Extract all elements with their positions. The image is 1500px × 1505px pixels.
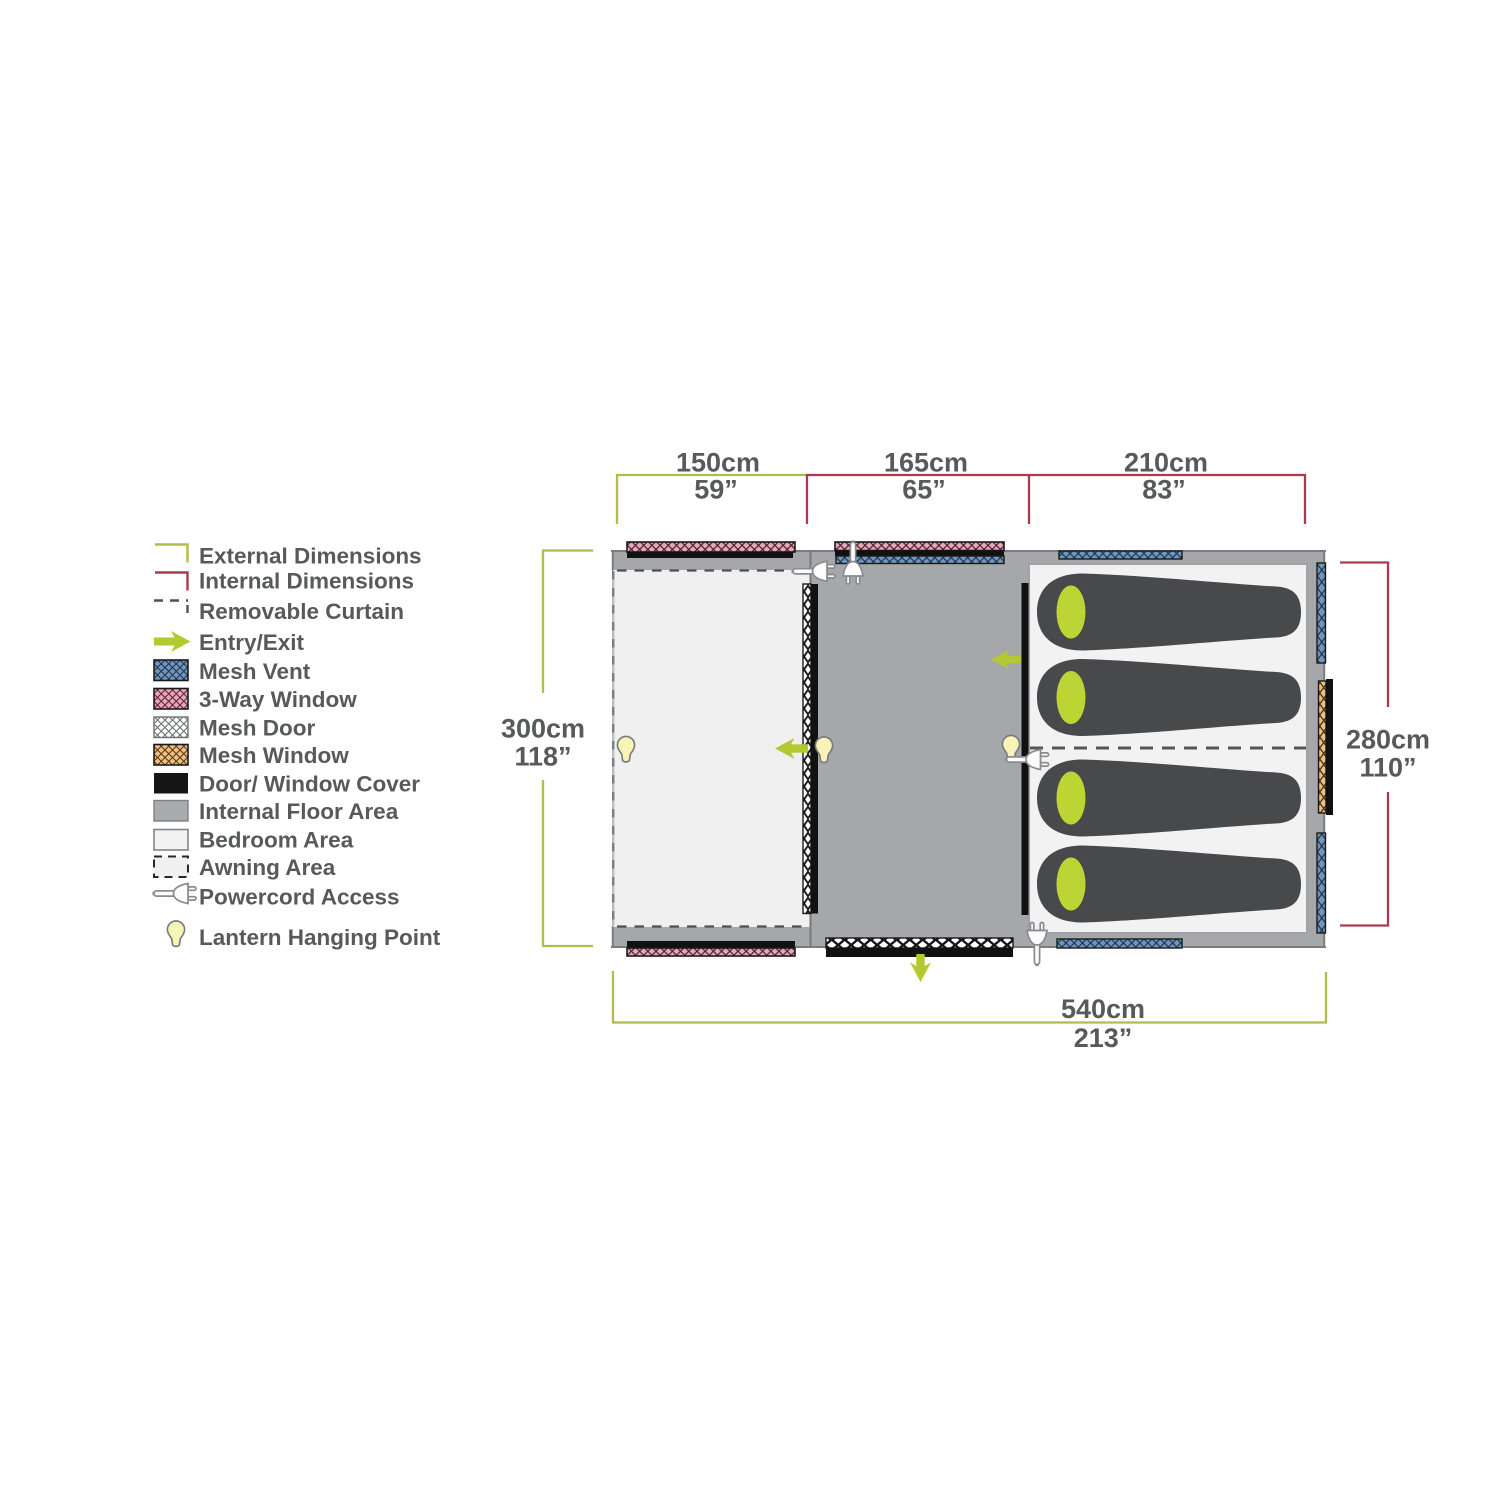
- svg-text:165cm: 165cm: [884, 448, 968, 478]
- svg-text:Powercord Access: Powercord Access: [199, 884, 400, 909]
- svg-text:Entry/Exit: Entry/Exit: [199, 630, 305, 655]
- svg-text:Mesh Vent: Mesh Vent: [199, 659, 311, 684]
- svg-text:Bedroom Area: Bedroom Area: [199, 828, 354, 853]
- svg-text:59”: 59”: [694, 475, 738, 505]
- svg-text:280cm: 280cm: [1346, 725, 1430, 755]
- svg-text:Door/ Window Cover: Door/ Window Cover: [199, 772, 420, 797]
- svg-text:83”: 83”: [1142, 475, 1186, 505]
- svg-text:150cm: 150cm: [676, 448, 760, 478]
- svg-text:213”: 213”: [1074, 1023, 1133, 1053]
- svg-text:3-Way Window: 3-Way Window: [199, 687, 357, 712]
- svg-text:110”: 110”: [1359, 753, 1416, 783]
- svg-text:Removable Curtain: Removable Curtain: [199, 599, 404, 624]
- svg-text:300cm: 300cm: [501, 714, 585, 744]
- svg-text:External Dimensions: External Dimensions: [199, 544, 422, 569]
- svg-text:Internal Floor Area: Internal Floor Area: [199, 799, 399, 824]
- svg-text:Awning Area: Awning Area: [199, 855, 336, 880]
- svg-text:65”: 65”: [902, 475, 946, 505]
- svg-text:540cm: 540cm: [1061, 994, 1145, 1024]
- svg-text:210cm: 210cm: [1124, 448, 1208, 478]
- svg-text:Mesh Window: Mesh Window: [199, 743, 349, 768]
- svg-text:Internal Dimensions: Internal Dimensions: [199, 569, 414, 594]
- svg-text:118”: 118”: [514, 742, 571, 772]
- svg-text:Mesh Door: Mesh Door: [199, 716, 316, 741]
- svg-text:Lantern Hanging Point: Lantern Hanging Point: [199, 925, 441, 950]
